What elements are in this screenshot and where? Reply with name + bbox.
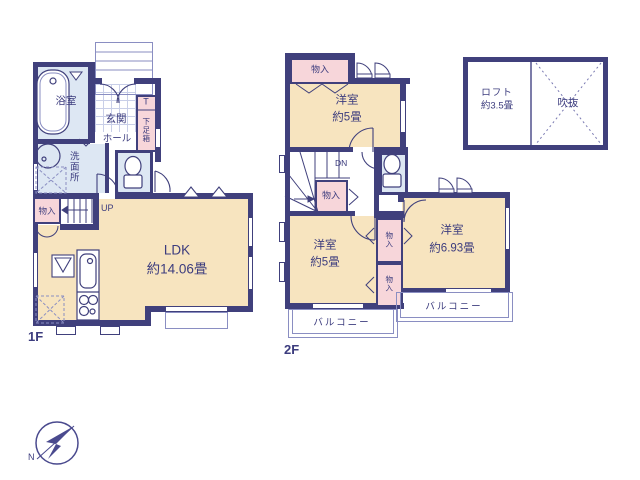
ldk-size-label: 約14.06畳 (147, 262, 208, 276)
bedroom-south-label: 洋室 (314, 240, 337, 252)
wall (378, 211, 404, 218)
toilet-room-1f (115, 150, 153, 195)
void-label: 吹抜 (558, 98, 579, 109)
bedroom-east-size: 約6.93畳 (429, 243, 474, 255)
window (400, 100, 406, 133)
bay-ledge (165, 312, 228, 329)
stairs-up-label: UP (101, 204, 114, 213)
wall (33, 139, 90, 144)
window (248, 217, 253, 247)
closet-2f-a-label: 物入 (385, 232, 393, 249)
hall-label: ホール (103, 134, 132, 144)
closet-2f-b-label: 物入 (385, 276, 393, 293)
wall (285, 147, 353, 152)
bedroom-north-size: 約5畳 (332, 112, 361, 124)
window (279, 155, 285, 173)
ldk-label: LDK (164, 243, 190, 257)
stairs-up-icon (62, 198, 92, 223)
wall (93, 78, 102, 84)
window (155, 128, 161, 148)
closet-1f-label: 物入 (38, 207, 55, 216)
wall (60, 224, 99, 230)
loft-size-label: 約3.5畳 (481, 101, 513, 111)
wall (33, 62, 95, 67)
bathroom-label: 浴室 (56, 96, 77, 107)
loft-label: ロフト (481, 88, 513, 98)
wall (33, 320, 151, 326)
entrance-label: 玄関 (106, 114, 127, 125)
floor1-label: 1F (28, 330, 43, 343)
north-label: N (28, 453, 35, 462)
floorplan-canvas: 浴室 玄関 T 下足箱 ホール 洗面所 物入 UP LDK 約14.06畳 1F… (0, 0, 640, 480)
window (33, 252, 38, 288)
bedroom-north-label: 洋室 (336, 95, 359, 107)
shoe-t-label: T (143, 98, 149, 107)
porch (95, 42, 153, 95)
window (279, 262, 285, 282)
washroom-label: 洗面所 (68, 151, 78, 183)
wall (402, 192, 510, 198)
bedroom-south-size: 約5畳 (310, 257, 339, 269)
window (248, 256, 253, 290)
window (56, 326, 76, 335)
window (505, 207, 510, 250)
bedroom-east-label: 洋室 (441, 225, 464, 237)
floor2-label: 2F (284, 343, 299, 356)
stairs-down-label: DN (335, 159, 347, 168)
balcony-left-label: バルコニー (313, 318, 370, 328)
closet-2f-stairs-label: 物入 (322, 192, 340, 201)
window (279, 222, 285, 242)
ldk-area-left (38, 225, 150, 320)
toilet-room-2f (379, 152, 408, 195)
window (100, 326, 120, 335)
wall (88, 62, 95, 143)
balcony-right-label: バルコニー (425, 302, 482, 312)
window (33, 163, 38, 191)
wall (285, 53, 290, 308)
closet-2f-top-label: 物入 (311, 66, 329, 75)
north-arrow (36, 422, 78, 464)
wall (105, 143, 109, 193)
shoe-box-label: 下足箱 (142, 117, 150, 143)
